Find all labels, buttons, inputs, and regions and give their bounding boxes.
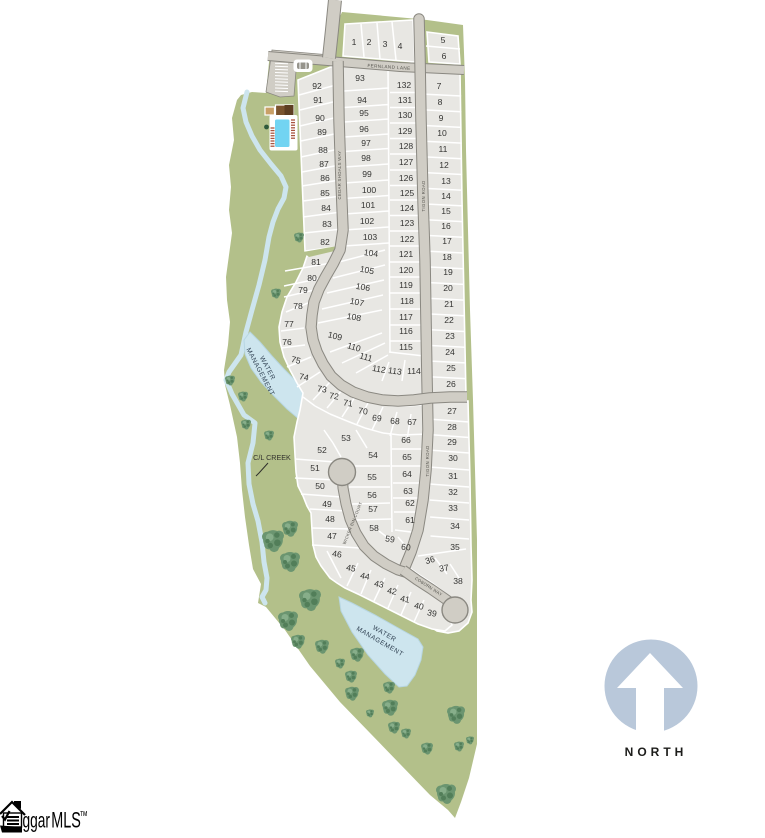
- svg-text:122: 122: [400, 234, 415, 244]
- svg-text:83: 83: [322, 219, 332, 229]
- svg-text:51: 51: [310, 463, 320, 473]
- svg-text:72: 72: [329, 390, 340, 401]
- svg-text:53: 53: [341, 433, 351, 443]
- svg-text:85: 85: [320, 188, 330, 198]
- svg-text:113: 113: [388, 365, 403, 377]
- svg-text:9: 9: [439, 113, 444, 123]
- svg-text:30: 30: [448, 453, 458, 463]
- svg-text:24: 24: [445, 347, 455, 357]
- svg-text:97: 97: [361, 138, 371, 148]
- svg-text:10: 10: [437, 128, 447, 138]
- svg-text:129: 129: [398, 126, 413, 136]
- svg-text:80: 80: [307, 273, 317, 283]
- svg-text:60: 60: [401, 542, 412, 553]
- svg-text:95: 95: [359, 108, 369, 118]
- svg-text:3: 3: [383, 39, 388, 49]
- svg-text:70: 70: [358, 405, 369, 416]
- svg-text:46: 46: [332, 548, 343, 559]
- svg-text:52: 52: [317, 445, 327, 455]
- svg-text:104: 104: [363, 247, 379, 259]
- svg-text:55: 55: [367, 472, 377, 482]
- svg-text:73: 73: [317, 383, 328, 394]
- svg-text:118: 118: [400, 296, 414, 306]
- svg-text:38: 38: [453, 576, 463, 586]
- svg-text:121: 121: [399, 249, 414, 259]
- svg-text:27: 27: [447, 406, 457, 416]
- svg-text:130: 130: [398, 110, 413, 120]
- svg-text:68: 68: [390, 416, 400, 427]
- svg-text:28: 28: [447, 422, 457, 432]
- svg-text:31: 31: [448, 471, 458, 481]
- svg-text:33: 33: [448, 503, 458, 513]
- svg-text:123: 123: [400, 218, 415, 228]
- svg-text:19: 19: [443, 267, 453, 277]
- svg-text:81: 81: [311, 257, 321, 267]
- svg-text:98: 98: [361, 153, 371, 163]
- svg-text:47: 47: [327, 531, 337, 541]
- svg-text:120: 120: [399, 265, 414, 275]
- svg-text:69: 69: [372, 413, 383, 424]
- svg-text:96: 96: [359, 124, 369, 134]
- svg-text:TIGON ROAD: TIGON ROAD: [425, 445, 430, 476]
- svg-text:61: 61: [405, 515, 415, 525]
- svg-text:50: 50: [315, 481, 325, 491]
- svg-text:77: 77: [284, 319, 294, 329]
- svg-text:26: 26: [446, 379, 456, 389]
- svg-text:131: 131: [398, 95, 413, 105]
- svg-text:79: 79: [298, 285, 308, 295]
- svg-text:21: 21: [444, 299, 454, 309]
- svg-text:76: 76: [282, 337, 292, 347]
- svg-text:ggar: ggar: [23, 808, 51, 832]
- svg-text:116: 116: [399, 326, 413, 336]
- svg-text:117: 117: [399, 312, 413, 322]
- svg-text:78: 78: [293, 301, 303, 311]
- svg-text:16: 16: [441, 221, 451, 231]
- svg-text:125: 125: [400, 188, 415, 198]
- svg-text:6: 6: [442, 51, 447, 61]
- svg-text:22: 22: [444, 315, 454, 325]
- svg-text:29: 29: [447, 437, 457, 447]
- svg-text:71: 71: [343, 397, 354, 408]
- svg-text:94: 94: [357, 95, 367, 105]
- svg-text:C/L CREEK: C/L CREEK: [253, 453, 291, 462]
- svg-text:124: 124: [400, 203, 415, 213]
- svg-text:126: 126: [399, 173, 414, 183]
- svg-text:91: 91: [313, 95, 323, 105]
- svg-text:37: 37: [438, 562, 449, 574]
- svg-text:1: 1: [352, 37, 357, 47]
- svg-text:88: 88: [318, 145, 328, 155]
- svg-text:82: 82: [320, 237, 330, 247]
- svg-text:99: 99: [362, 169, 372, 179]
- svg-text:74: 74: [298, 371, 309, 383]
- svg-text:89: 89: [317, 127, 327, 137]
- svg-text:12: 12: [439, 160, 449, 170]
- svg-text:93: 93: [355, 73, 365, 83]
- svg-text:100: 100: [362, 185, 377, 195]
- svg-text:CEDAR SHOALS WAY: CEDAR SHOALS WAY: [337, 151, 342, 200]
- svg-text:49: 49: [322, 499, 332, 509]
- svg-text:67: 67: [407, 417, 417, 427]
- svg-text:62: 62: [405, 498, 415, 508]
- svg-text:NORTH: NORTH: [625, 745, 688, 759]
- svg-text:58: 58: [369, 523, 379, 533]
- svg-text:103: 103: [363, 232, 378, 242]
- svg-text:11: 11: [439, 144, 448, 154]
- svg-text:15: 15: [441, 206, 451, 216]
- svg-text:17: 17: [442, 236, 452, 246]
- svg-text:59: 59: [385, 533, 396, 544]
- svg-text:63: 63: [403, 486, 413, 496]
- svg-text:90: 90: [315, 113, 325, 123]
- svg-text:119: 119: [399, 280, 413, 290]
- svg-text:18: 18: [442, 252, 452, 262]
- svg-text:14: 14: [441, 191, 451, 201]
- svg-text:4: 4: [398, 41, 403, 51]
- svg-text:115: 115: [399, 342, 413, 352]
- svg-text:127: 127: [399, 157, 414, 167]
- svg-text:32: 32: [448, 487, 458, 497]
- svg-text:87: 87: [319, 159, 329, 169]
- svg-text:128: 128: [399, 141, 414, 151]
- svg-text:39: 39: [426, 607, 437, 619]
- svg-text:23: 23: [445, 331, 455, 341]
- svg-text:56: 56: [367, 490, 377, 500]
- svg-text:86: 86: [320, 173, 330, 183]
- svg-text:34: 34: [450, 521, 460, 531]
- svg-text:25: 25: [446, 363, 456, 373]
- svg-text:MLS: MLS: [51, 808, 81, 833]
- svg-text:54: 54: [368, 450, 378, 460]
- svg-text:65: 65: [402, 452, 412, 462]
- svg-text:TIGON ROAD: TIGON ROAD: [421, 180, 426, 211]
- svg-text:48: 48: [325, 514, 335, 524]
- svg-text:20: 20: [443, 283, 453, 293]
- svg-text:5: 5: [441, 35, 446, 45]
- svg-text:66: 66: [401, 435, 411, 445]
- svg-text:35: 35: [450, 542, 460, 552]
- svg-text:™: ™: [79, 809, 87, 823]
- svg-text:132: 132: [397, 80, 412, 90]
- svg-text:57: 57: [368, 504, 378, 514]
- svg-text:13: 13: [441, 176, 451, 186]
- svg-text:102: 102: [360, 216, 375, 226]
- svg-text:92: 92: [312, 81, 322, 91]
- svg-text:7: 7: [437, 81, 442, 91]
- svg-text:84: 84: [321, 203, 331, 213]
- svg-text:2: 2: [367, 37, 372, 47]
- svg-text:114: 114: [407, 366, 421, 376]
- svg-text:64: 64: [402, 469, 412, 479]
- svg-text:101: 101: [361, 200, 376, 210]
- svg-text:8: 8: [438, 97, 443, 107]
